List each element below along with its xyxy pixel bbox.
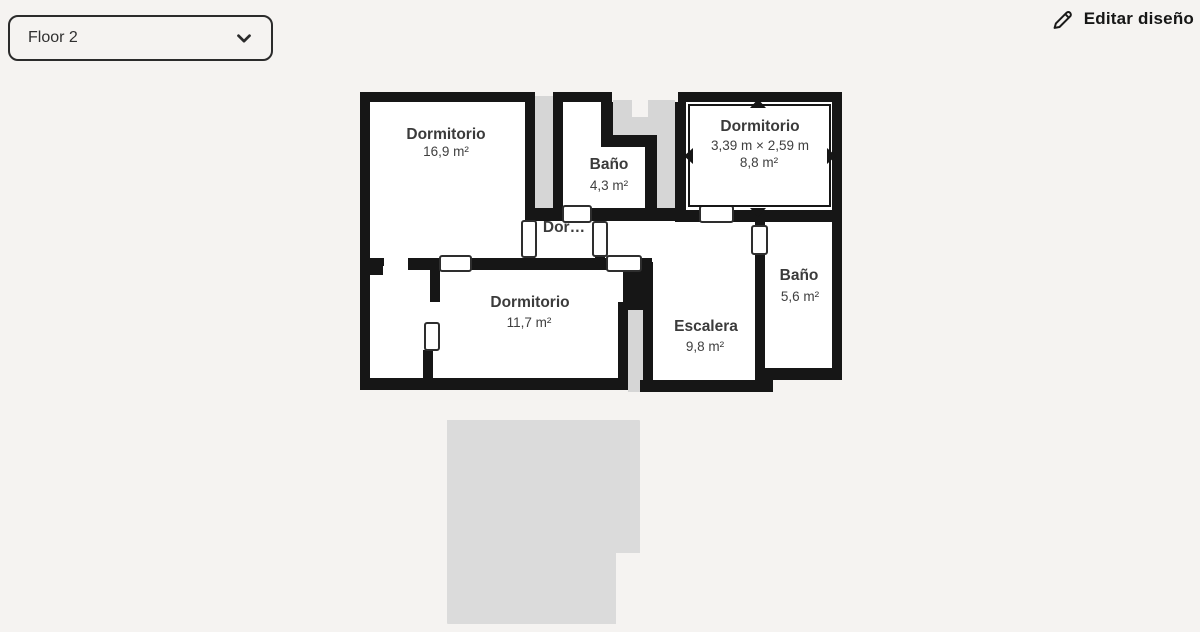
room-label-dormitorio-top-left: Dormitorio bbox=[406, 126, 485, 143]
room-area-dormitorio-top-left: 16,9 m² bbox=[423, 144, 469, 159]
floorplan-canvas: Dormitorio 16,9 m² Baño 4,3 m² Dormitori… bbox=[0, 0, 1200, 632]
lower-floor-silhouette[interactable] bbox=[447, 420, 640, 624]
chevron-down-icon bbox=[233, 27, 255, 49]
room-area-dormitorio-selected: 8,8 m² bbox=[740, 155, 779, 170]
door-hallway[interactable] bbox=[425, 323, 439, 350]
room-label-bano-right: Baño bbox=[780, 267, 819, 284]
door-dor-left[interactable] bbox=[522, 221, 536, 257]
room-area-bano-right: 5,6 m² bbox=[781, 289, 820, 304]
room-label-bano-top: Baño bbox=[590, 156, 629, 173]
room-dimensions-dormitorio-selected: 3,39 m × 2,59 m bbox=[711, 138, 809, 153]
underlay-strip-bottom bbox=[628, 302, 643, 392]
door-dormitorio-selected[interactable] bbox=[700, 206, 733, 222]
edit-design-button[interactable]: Editar diseño bbox=[1048, 4, 1196, 34]
pencil-icon bbox=[1050, 7, 1074, 31]
room-area-dormitorio-bottom: 11,7 m² bbox=[507, 315, 552, 330]
door-dormitorio-bottom-left[interactable] bbox=[440, 256, 471, 271]
floor-plan-view: Dormitorio 16,9 m² Baño 4,3 m² Dormitori… bbox=[0, 0, 1200, 632]
door-dor-right[interactable] bbox=[593, 222, 607, 256]
room-area-escalera: 9,8 m² bbox=[686, 339, 725, 354]
door-dormitorio-bottom-right[interactable] bbox=[607, 256, 641, 271]
floor-selector-dropdown[interactable]: Floor 2 bbox=[8, 15, 273, 61]
room-area-bano-top: 4,3 m² bbox=[590, 178, 629, 193]
underlay-shaft bbox=[535, 96, 553, 214]
room-label-escalera: Escalera bbox=[674, 318, 738, 335]
door-bano-right[interactable] bbox=[752, 226, 767, 254]
underlay-notch bbox=[632, 98, 648, 117]
edit-design-label: Editar diseño bbox=[1084, 9, 1194, 29]
room-label-dor-small: Dor… bbox=[543, 219, 585, 236]
room-label-dormitorio-selected: Dormitorio bbox=[720, 118, 799, 135]
floor-selector-value: Floor 2 bbox=[28, 29, 78, 47]
room-label-dormitorio-bottom: Dormitorio bbox=[490, 294, 569, 311]
